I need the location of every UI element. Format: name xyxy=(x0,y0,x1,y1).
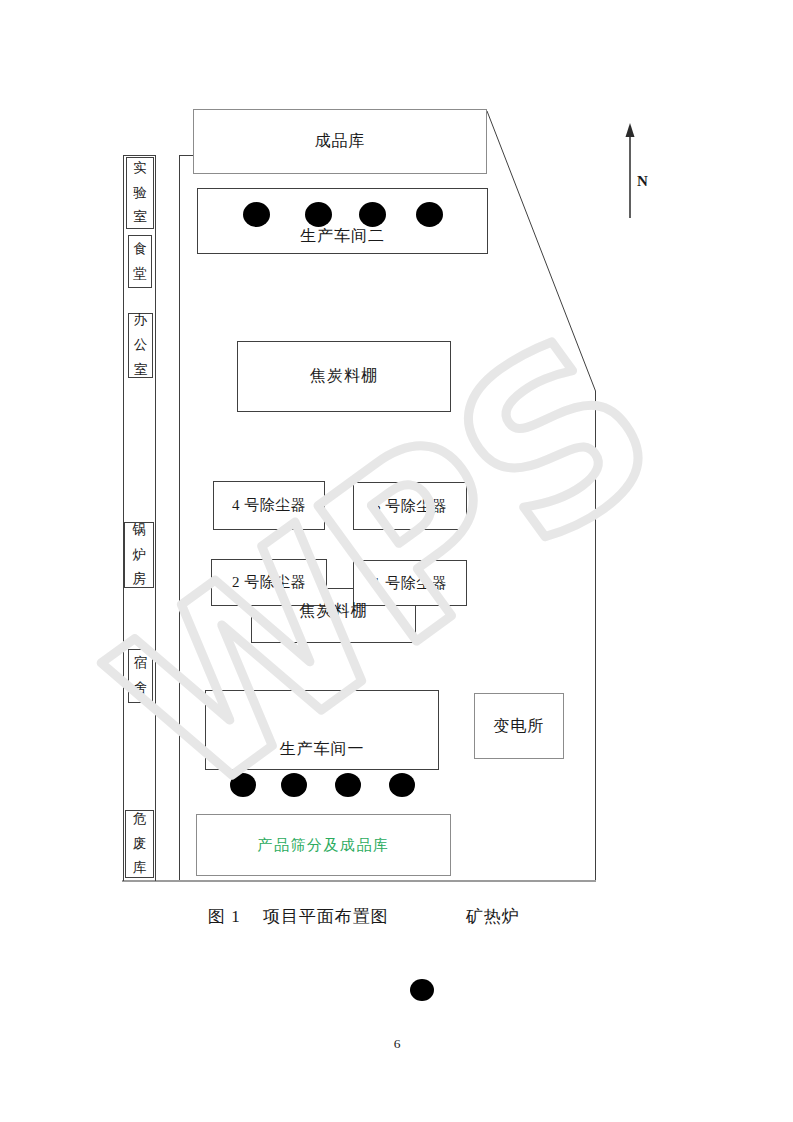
strip-room-hazardous-waste: 危废库 xyxy=(125,810,154,878)
north-label: N xyxy=(637,173,648,189)
building-substation: 变电所 xyxy=(474,693,564,759)
room-label: 办公室 xyxy=(133,308,148,383)
furnace-dot xyxy=(416,202,443,227)
strip-room-office: 办公室 xyxy=(128,313,153,378)
building-dust-collector-3: 3 号除尘器 xyxy=(353,482,467,530)
building-screening-warehouse: 产品筛分及成品库 xyxy=(196,814,451,876)
furnace-dot xyxy=(230,773,256,797)
furnace-dot xyxy=(281,773,307,797)
figure-caption: 图 1项目平面布置图矿热炉 xyxy=(208,905,520,928)
building-dust-collector-2: 2 号除尘器 xyxy=(211,559,327,606)
room-label: 实验室 xyxy=(133,156,148,231)
coke-shed-lower-label: 焦炭料棚 xyxy=(251,601,416,622)
legend-furnace-dot xyxy=(410,979,434,1001)
strip-room-dormitory: 宿舍 xyxy=(128,649,153,703)
building-coke-shed-upper: 焦炭料棚 xyxy=(237,341,451,412)
north-arrow-icon xyxy=(626,123,635,218)
building-label: 3 号除尘器 xyxy=(373,497,447,516)
building-label: 焦炭料棚 xyxy=(310,366,378,387)
strip-room-boiler-house: 锅炉房 xyxy=(124,522,154,588)
building-label: 生产车间二 xyxy=(300,226,385,247)
furnace-dot xyxy=(305,202,332,227)
building-workshop1: 生产车间一 xyxy=(205,690,439,770)
building-finished-warehouse: 成品库 xyxy=(193,109,487,174)
building-label: 2 号除尘器 xyxy=(232,573,306,592)
document-page: N 成品库 生产车间二 焦炭料棚 4 号除尘器 3 号除尘器 2 号除尘器 1 … xyxy=(0,0,793,1122)
strip-room-laboratory: 实验室 xyxy=(126,157,154,229)
building-dust-collector-1: 1 号除尘器 xyxy=(353,560,467,606)
strip-room-canteen: 食堂 xyxy=(128,235,152,288)
building-label: 生产车间一 xyxy=(280,739,365,760)
room-label: 食堂 xyxy=(133,237,148,287)
room-label: 危废库 xyxy=(132,807,147,882)
building-label: 变电所 xyxy=(494,716,545,737)
building-label: 成品库 xyxy=(315,131,366,152)
building-label: 1 号除尘器 xyxy=(373,574,447,593)
room-label: 锅炉房 xyxy=(132,518,147,593)
room-label: 宿舍 xyxy=(133,651,148,701)
furnace-dot xyxy=(243,202,270,227)
figure-number: 图 1 xyxy=(208,907,241,926)
furnace-dot xyxy=(389,773,415,797)
figure-title: 项目平面布置图 xyxy=(263,907,389,926)
building-label: 产品筛分及成品库 xyxy=(258,836,390,855)
building-dust-collector-4: 4 号除尘器 xyxy=(213,481,325,530)
page-number: 6 xyxy=(382,1036,412,1052)
building-workshop2: 生产车间二 xyxy=(197,188,488,254)
legend-label: 矿热炉 xyxy=(466,907,520,926)
furnace-dot xyxy=(335,773,361,797)
building-label: 4 号除尘器 xyxy=(232,496,306,515)
furnace-dot xyxy=(359,202,386,227)
